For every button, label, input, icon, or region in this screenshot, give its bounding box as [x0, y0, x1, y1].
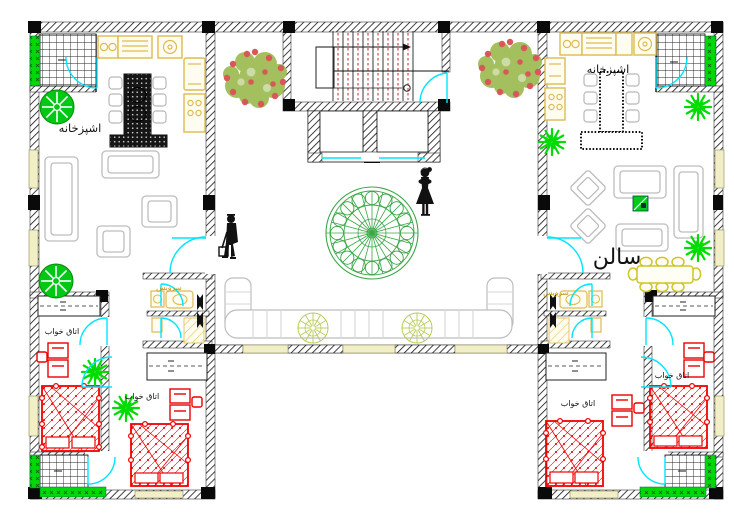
- stair-marker-circle: [404, 85, 410, 91]
- dining-table-left: [109, 74, 167, 147]
- label-kitchen-right: اشپزخانه: [587, 62, 630, 77]
- living-room-left: [45, 151, 177, 257]
- label-salon: سالن: [593, 245, 642, 270]
- hedge-top-right: [705, 36, 716, 86]
- kitchen-right: [545, 33, 656, 149]
- dining-table-right: [581, 72, 642, 149]
- flowering-bush: [223, 49, 287, 108]
- bed: [129, 422, 191, 486]
- desk-with-chair: [37, 343, 68, 377]
- balcony-bottom-left: [40, 455, 88, 488]
- label-bedroom-bl-outer: اتاق خواب: [45, 327, 79, 336]
- label-kitchen-left: اشپزخانه: [59, 121, 102, 136]
- stair-direction-arrow: [403, 44, 411, 51]
- side-table-green: [633, 196, 648, 211]
- man-figure: [219, 214, 238, 259]
- kitchen-left: [98, 36, 205, 147]
- courtyard: [223, 39, 542, 343]
- mandala-floor-medallion: [326, 187, 418, 279]
- label-wc-right: سرویس: [543, 288, 569, 297]
- spiky-plant: [685, 235, 711, 261]
- label-bedroom-bl-inner: اتاق خواب: [125, 392, 159, 401]
- bedroom-furniture: [37, 343, 714, 486]
- staircase: [316, 31, 449, 101]
- floor-plan-canvas: اشپزخانه اشپزخانه سالن سرویس سرویس اتاق …: [0, 0, 734, 518]
- label-bedroom-br-inner: اتاق خواب: [561, 399, 595, 408]
- balcony-top-left: [40, 34, 96, 86]
- round-tree: [40, 90, 74, 124]
- flowering-bush: [478, 39, 542, 98]
- bed: [40, 384, 102, 451]
- wc-right: [549, 291, 602, 343]
- desk-with-chair: [170, 389, 202, 420]
- hedge-top-left: [30, 36, 40, 86]
- round-tree: [39, 264, 73, 298]
- elevator-shafts: [308, 111, 440, 176]
- bed: [544, 419, 606, 486]
- woman-figure: [416, 167, 434, 216]
- desk-with-chair: [612, 395, 644, 426]
- kitchen-bench: [110, 135, 167, 147]
- wc-left: [151, 291, 204, 343]
- label-bedroom-br-outer: اتاق خواب: [655, 371, 689, 380]
- balcony-top-right: [657, 34, 705, 86]
- label-wc-left: سرویس: [156, 283, 182, 292]
- bed: [648, 384, 710, 448]
- courtyard-bench: [225, 278, 513, 338]
- spiky-plant: [685, 94, 711, 120]
